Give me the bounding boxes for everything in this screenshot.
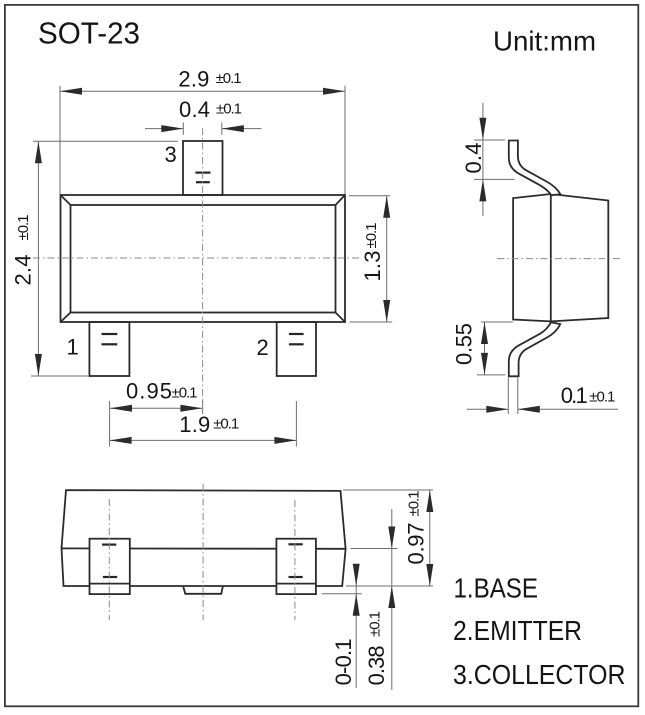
svg-text:±0.1: ±0.1: [15, 215, 32, 241]
svg-text:2.EMITTER: 2.EMITTER: [453, 615, 582, 646]
svg-text:2: 2: [257, 335, 269, 360]
svg-text:SOT-23: SOT-23: [38, 16, 140, 51]
svg-text:0.38: 0.38: [364, 645, 389, 685]
svg-text:±0.1: ±0.1: [363, 223, 380, 249]
svg-text:1.BASE: 1.BASE: [454, 573, 539, 604]
svg-text:0.4: 0.4: [179, 97, 210, 122]
svg-text:±0.1: ±0.1: [216, 101, 242, 118]
svg-text:0.95: 0.95: [126, 378, 172, 403]
svg-text:3: 3: [165, 142, 177, 167]
svg-text:3.COLLECTOR: 3.COLLECTOR: [453, 659, 626, 690]
svg-text:2.9: 2.9: [178, 67, 209, 92]
svg-text:±0.1: ±0.1: [172, 385, 198, 402]
svg-text:±0.1: ±0.1: [216, 70, 242, 87]
svg-text:±0.1: ±0.1: [406, 491, 423, 517]
svg-text:±0.1: ±0.1: [213, 415, 239, 432]
svg-text:±0.1: ±0.1: [366, 611, 383, 637]
svg-text:0.4: 0.4: [461, 143, 486, 174]
svg-text:0-0.1: 0-0.1: [331, 638, 356, 685]
svg-text:2.4: 2.4: [11, 255, 36, 286]
svg-text:Unit:mm: Unit:mm: [493, 25, 596, 56]
svg-text:0.55: 0.55: [451, 323, 476, 365]
svg-text:±0.1: ±0.1: [589, 389, 615, 406]
svg-text:1: 1: [67, 335, 79, 360]
svg-text:0.1: 0.1: [561, 383, 588, 408]
svg-text:1.3: 1.3: [360, 251, 385, 282]
svg-text:0.97: 0.97: [403, 523, 428, 565]
svg-text:1.9: 1.9: [179, 412, 210, 437]
